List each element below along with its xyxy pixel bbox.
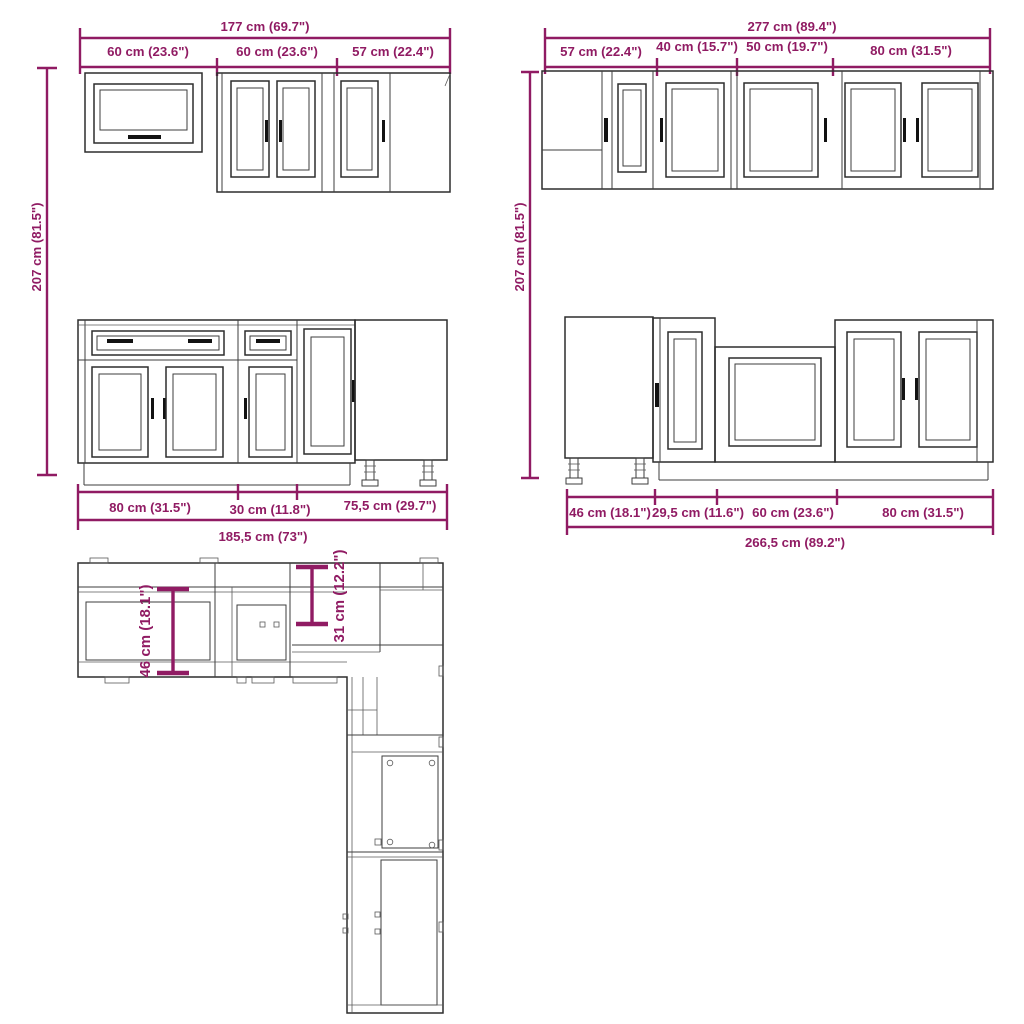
dim-label-segment-3: 50 cm (19.7") bbox=[746, 39, 828, 54]
base-cabinet-run-right: 46 cm (18.1") 29,5 cm (11.6") 60 cm (23.… bbox=[565, 317, 993, 550]
base-right-total-dimension: 266,5 cm (89.2") bbox=[567, 527, 993, 550]
door-handle bbox=[660, 118, 663, 142]
base-left-cabinet-drawing bbox=[78, 320, 447, 486]
floor-plan-top-view: 46 cm (18.1") 31 cm (12.2") bbox=[78, 549, 443, 1013]
adjustable-leg bbox=[566, 458, 582, 484]
single-door-wall-cabinet-40 bbox=[653, 71, 731, 189]
drawer-and-door-unit-30 bbox=[238, 320, 297, 463]
dim-label-total-width: 266,5 cm (89.2") bbox=[745, 535, 845, 550]
corner-base-unit bbox=[565, 317, 653, 484]
dim-label-total-width: 177 cm (69.7") bbox=[220, 19, 309, 34]
corner-wall-cabinet bbox=[542, 71, 646, 189]
door-handle bbox=[915, 378, 918, 400]
double-door-wall-cabinet-80 bbox=[845, 71, 980, 189]
left-column-height-dimension: 207 cm (81.5") bbox=[29, 68, 57, 475]
double-door-unit-80 bbox=[835, 320, 993, 462]
plan-base-depth-dimension: 46 cm (18.1") bbox=[137, 584, 189, 677]
dim-label-segment-3: 75,5 cm (29.7") bbox=[344, 498, 437, 513]
base-left-segment-dimension: 80 cm (31.5") 30 cm (11.8") 75,5 cm (29.… bbox=[78, 484, 447, 530]
drawer-handle bbox=[188, 339, 212, 343]
door-handle bbox=[903, 118, 906, 142]
door-handle bbox=[655, 383, 659, 407]
wall-cabinet-run-right: 277 cm (89.4") 57 cm (22.4") 40 cm (15.7… bbox=[512, 19, 993, 478]
door-handle bbox=[151, 398, 154, 419]
dim-label-segment-1: 80 cm (31.5") bbox=[109, 500, 191, 515]
adjustable-leg bbox=[362, 460, 378, 486]
tall-door-unit bbox=[304, 329, 355, 454]
single-door-and-corner-panel bbox=[334, 73, 450, 192]
door-handle bbox=[244, 398, 247, 419]
right-column-height-dimension: 207 cm (81.5") bbox=[512, 72, 539, 478]
dim-label-segment-3: 60 cm (23.6") bbox=[752, 505, 834, 520]
dim-label-height-left: 207 cm (81.5") bbox=[29, 202, 44, 291]
base-left-total-dimension: 185,5 cm (73") bbox=[78, 520, 447, 544]
door-handle bbox=[824, 118, 827, 142]
dim-label-segment-3: 57 cm (22.4") bbox=[352, 44, 434, 59]
wall-left-cabinet-drawing bbox=[85, 73, 450, 192]
dim-label-base-depth: 46 cm (18.1") bbox=[137, 584, 154, 677]
dim-label-segment-1: 60 cm (23.6") bbox=[107, 44, 189, 59]
plan-top-arm bbox=[78, 558, 443, 683]
plinth bbox=[659, 462, 988, 480]
drawer-and-double-door-unit-80 bbox=[78, 320, 238, 463]
door-handle bbox=[604, 118, 608, 142]
adjustable-leg bbox=[420, 460, 436, 486]
door-handle bbox=[916, 118, 919, 142]
door-handle bbox=[902, 378, 905, 400]
dim-label-segment-2: 30 cm (11.8") bbox=[229, 502, 310, 517]
dim-label-segment-2: 29,5 cm (11.6") bbox=[652, 505, 744, 520]
dim-label-segment-1: 57 cm (22.4") bbox=[560, 44, 642, 59]
dim-label-segment-2: 40 cm (15.7") bbox=[656, 39, 738, 54]
diagram-canvas: 177 cm (69.7") 60 cm (23.6") 60 cm (23.6… bbox=[0, 0, 1024, 1024]
single-door-wall-cabinet-50 bbox=[737, 71, 842, 189]
wall-left-segment-dimension: 60 cm (23.6") 60 cm (23.6") 57 cm (22.4"… bbox=[80, 44, 450, 76]
plinth bbox=[84, 463, 350, 485]
drawer-handle bbox=[256, 339, 280, 343]
door-handle bbox=[279, 120, 282, 142]
appliance-housing-unit-60 bbox=[715, 347, 835, 462]
base-right-cabinet-drawing bbox=[565, 317, 993, 484]
dim-label-segment-4: 80 cm (31.5") bbox=[870, 43, 952, 58]
dim-label-wall-depth: 31 cm (12.2") bbox=[331, 549, 348, 642]
plan-outline bbox=[78, 563, 443, 1013]
door-handle bbox=[128, 135, 161, 139]
dim-label-total-width: 277 cm (89.4") bbox=[747, 19, 836, 34]
flip-up-wall-cabinet bbox=[85, 73, 202, 152]
door-handle bbox=[382, 120, 385, 142]
adjustable-leg bbox=[632, 458, 648, 484]
dim-label-segment-2: 60 cm (23.6") bbox=[236, 44, 318, 59]
wall-right-cabinet-drawing bbox=[542, 71, 993, 189]
dim-label-total-width: 185,5 cm (73") bbox=[218, 529, 307, 544]
tall-door-unit-29 bbox=[653, 318, 715, 462]
base-cabinet-run-left: 80 cm (31.5") 30 cm (11.8") 75,5 cm (29.… bbox=[78, 320, 447, 544]
corner-base-unit bbox=[355, 320, 447, 486]
door-handle bbox=[265, 120, 268, 142]
kitchen-cabinet-dimension-diagram: 177 cm (69.7") 60 cm (23.6") 60 cm (23.6… bbox=[0, 0, 1024, 1024]
plan-vertical-arm bbox=[343, 666, 443, 1013]
dim-label-height-right: 207 cm (81.5") bbox=[512, 202, 527, 291]
drawer-handle bbox=[107, 339, 133, 343]
dim-label-segment-4: 80 cm (31.5") bbox=[882, 505, 964, 520]
dim-label-segment-1: 46 cm (18.1") bbox=[569, 505, 651, 520]
